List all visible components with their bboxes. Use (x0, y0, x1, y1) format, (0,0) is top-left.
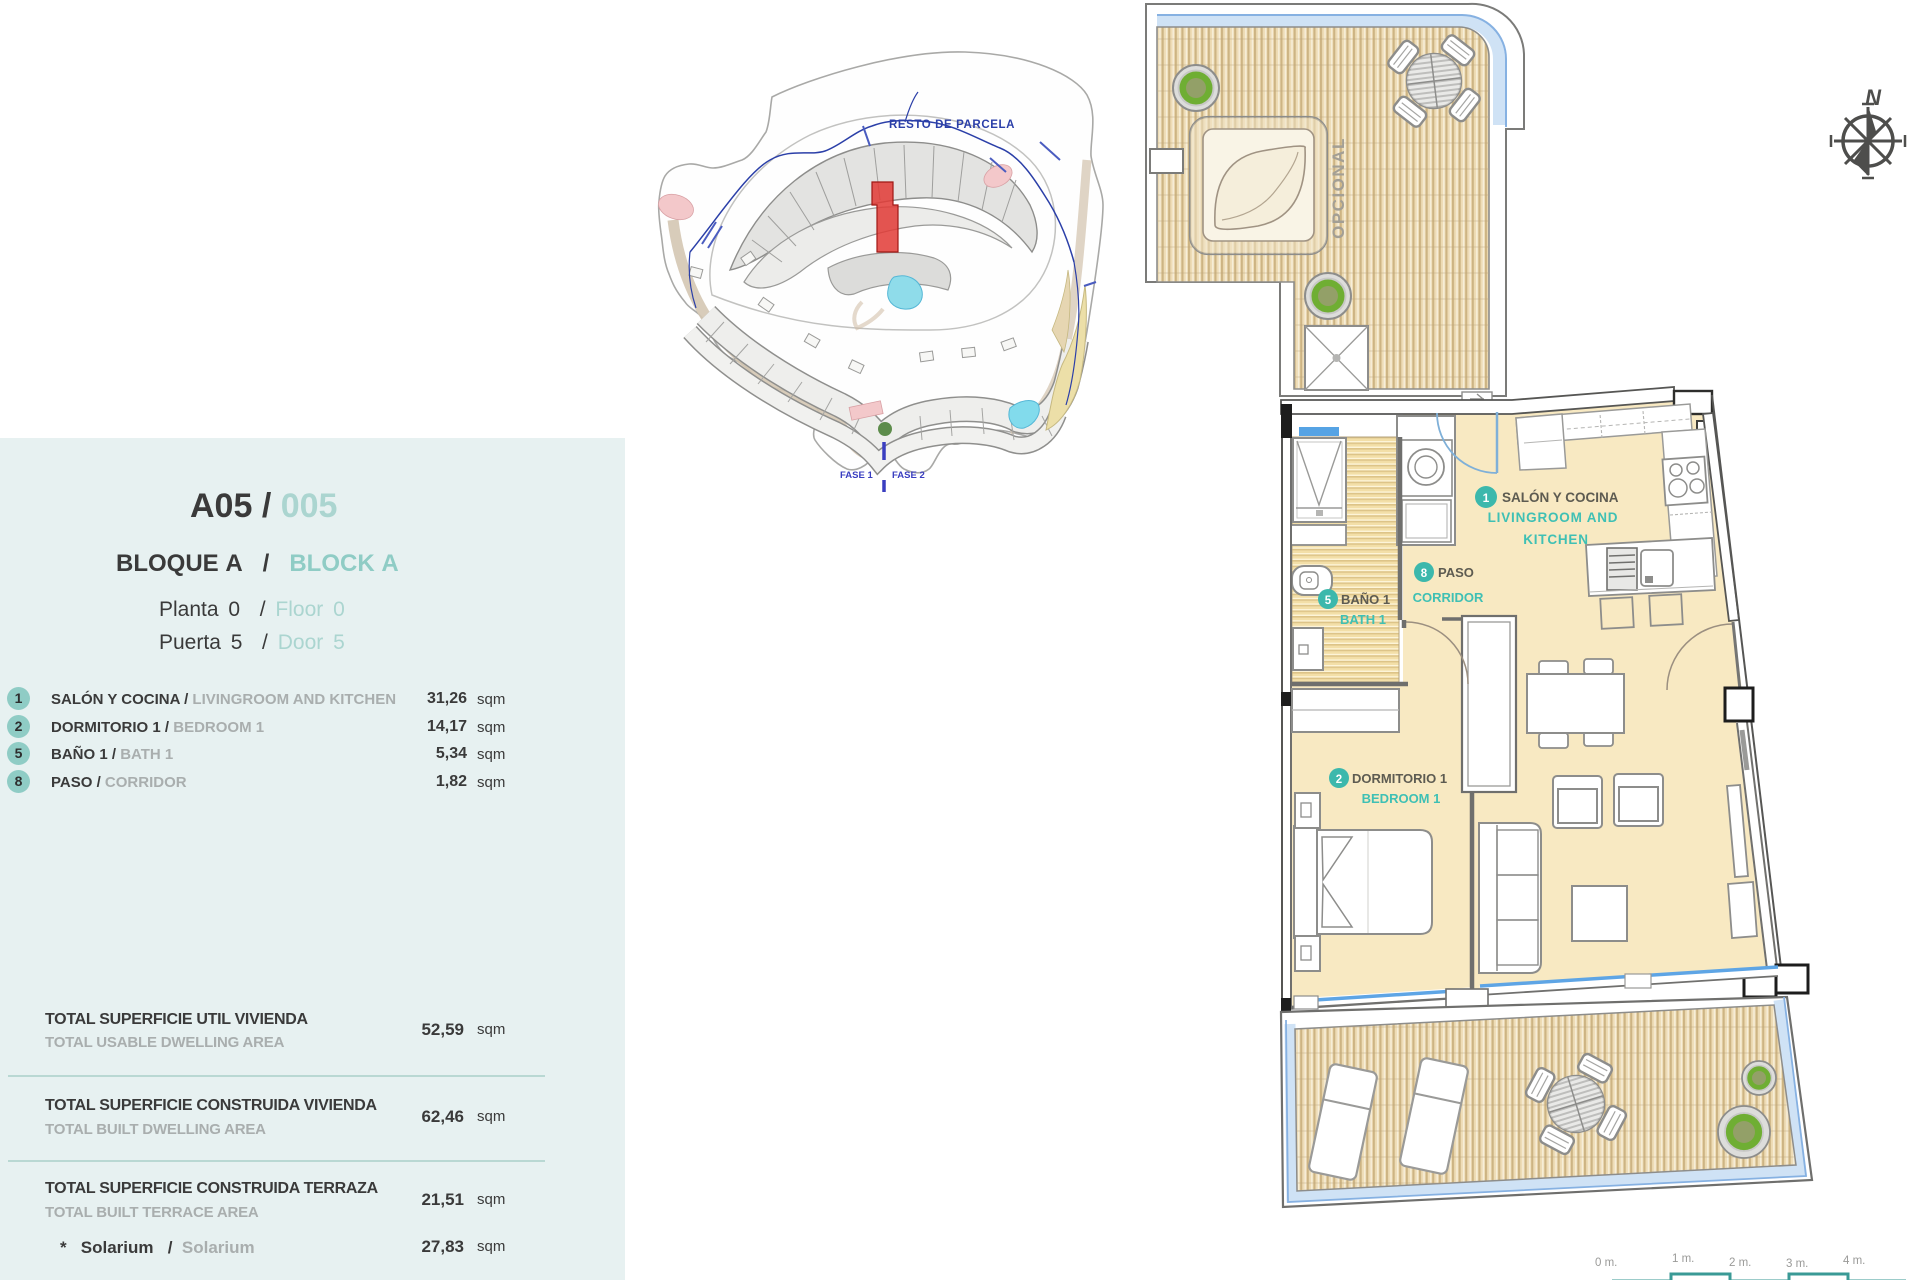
svg-text:4 m.: 4 m. (1843, 1255, 1865, 1267)
svg-text:BAÑO 1: BAÑO 1 (1341, 592, 1390, 607)
svg-text:RESTO DE PARCELA: RESTO DE PARCELA (889, 119, 1015, 131)
svg-text:1 m.: 1 m. (1672, 1253, 1694, 1265)
svg-text:N: N (1865, 85, 1882, 110)
svg-text:FASE 2: FASE 2 (892, 470, 925, 481)
svg-text:PASO: PASO (1438, 565, 1474, 580)
svg-text:KITCHEN: KITCHEN (1523, 532, 1589, 547)
svg-text:5: 5 (1325, 595, 1332, 607)
svg-text:SALÓN Y COCINA: SALÓN Y COCINA (1502, 490, 1619, 505)
svg-text:BEDROOM 1: BEDROOM 1 (1362, 791, 1441, 806)
svg-text:LIVINGROOM AND: LIVINGROOM AND (1488, 510, 1619, 525)
svg-text:3 m.: 3 m. (1786, 1258, 1808, 1270)
svg-text:2 m.: 2 m. (1729, 1257, 1751, 1269)
svg-text:BATH 1: BATH 1 (1340, 612, 1386, 627)
svg-text:8: 8 (1421, 568, 1428, 580)
svg-text:2: 2 (1336, 774, 1342, 786)
svg-text:DORMITORIO 1: DORMITORIO 1 (1352, 771, 1447, 786)
svg-text:CORRIDOR: CORRIDOR (1413, 590, 1484, 605)
svg-text:FASE 1: FASE 1 (840, 470, 873, 481)
svg-text:1: 1 (1483, 491, 1490, 505)
svg-text:0 m.: 0 m. (1595, 1257, 1617, 1269)
svg-text:OPCIONAL: OPCIONAL (1329, 137, 1348, 239)
